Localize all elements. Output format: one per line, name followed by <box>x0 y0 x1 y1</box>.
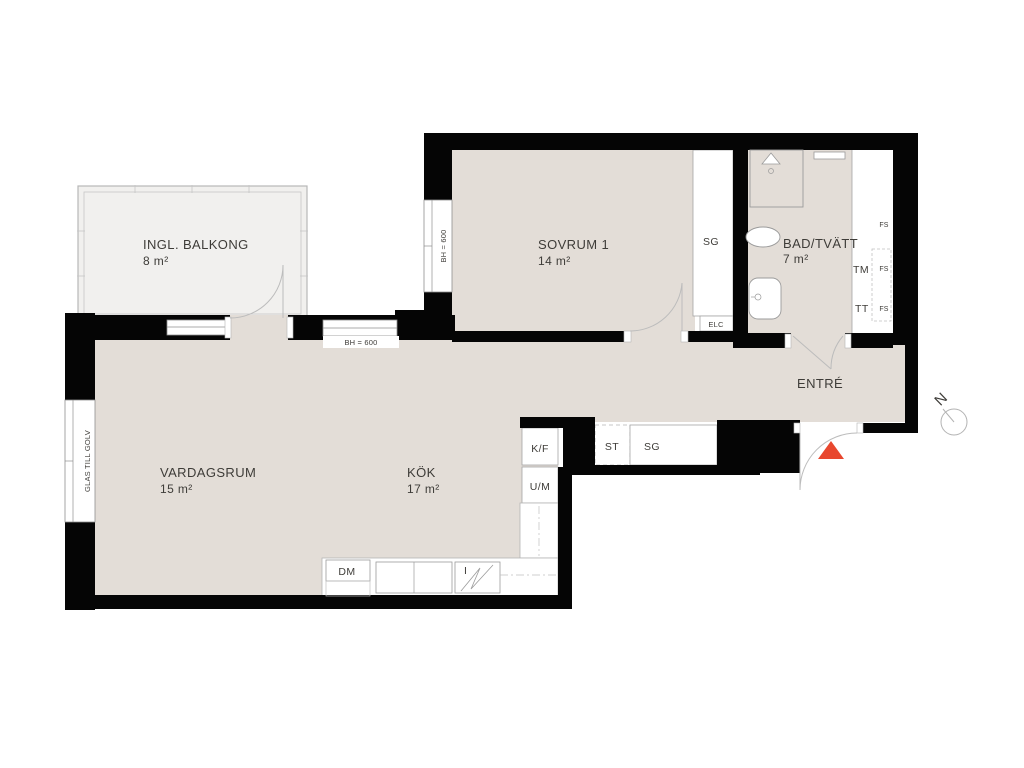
living-name: VARDAGSRUM <box>160 465 256 480</box>
entrance-name: ENTRÉ <box>797 376 843 391</box>
cleaning-closet-label: ST <box>605 441 619 453</box>
wall-bathroom-west <box>733 150 748 348</box>
hob-label: I <box>464 565 467 577</box>
sill-height-living-label: BH = 600 <box>344 338 377 347</box>
bathtub <box>749 278 781 319</box>
balcony-outer-wall <box>78 186 307 320</box>
kitchen-name: KÖK <box>407 465 436 480</box>
linen-cupboard-1-label: FS <box>879 222 888 229</box>
washing-machine-label: TM <box>853 264 869 276</box>
bathroom-door-jamb-right <box>845 334 851 348</box>
tumble-dryer-label: TT <box>855 303 869 315</box>
living-north-window-1 <box>167 320 230 335</box>
balcony-area: 8 m² <box>143 254 169 268</box>
front-door-gap <box>800 423 857 433</box>
wall-bedroom-south-right <box>682 331 733 342</box>
floor-plan-page: N INGL. BALKONG 8 m² SOVRUM 1 14 m² BAD/… <box>0 0 1024 768</box>
oven-microwave-label: U/M <box>530 481 550 493</box>
front-door-jamb-right <box>857 423 863 433</box>
floor-plan-drawing: N INGL. BALKONG 8 m² SOVRUM 1 14 m² BAD/… <box>0 0 1024 768</box>
hall-wardrobe-label: SG <box>644 441 660 453</box>
wall-bathroom-south-right <box>845 333 893 348</box>
kitchen-area: 17 m² <box>407 482 440 496</box>
sill-height-bedroom-label: BH = 600 <box>439 229 448 262</box>
balcony <box>77 185 308 320</box>
glass-to-floor-label: GLAS TILL GOLV <box>83 430 92 492</box>
bathroom-door-jamb-left <box>785 334 791 348</box>
washbasin <box>746 227 780 247</box>
balcony-name: INGL. BALKONG <box>143 237 249 252</box>
dishwasher-label: DM <box>338 566 355 578</box>
bedroom-door-gap <box>630 331 682 342</box>
linen-cupboard-3-label: FS <box>879 306 888 313</box>
wall-entrance-southwest <box>717 420 800 473</box>
wall-bathroom-south-left <box>733 333 791 348</box>
bedroom-door-jamb-left <box>624 331 631 342</box>
wall-bottom <box>65 595 572 609</box>
bedroom-area: 14 m² <box>538 254 571 268</box>
bedroom-name: SOVRUM 1 <box>538 237 609 252</box>
wall-east-lower <box>905 340 918 433</box>
electrical-cabinet-label: ELC <box>708 320 724 329</box>
bedroom-wardrobe <box>693 150 733 316</box>
wall-top <box>424 133 918 150</box>
bathroom-area: 7 m² <box>783 252 809 266</box>
fridge-freezer-label: K/F <box>531 443 549 455</box>
linen-cupboard-2-label: FS <box>879 266 888 273</box>
wall-pillar-kitchen <box>563 417 595 467</box>
wall-bedroom-south-left <box>452 331 630 342</box>
balcony-door-jamb-left <box>225 317 231 338</box>
wall-kitchen-east <box>558 467 572 609</box>
bedroom-wardrobe-label: SG <box>703 236 719 248</box>
bedroom-door-jamb-right <box>681 331 688 342</box>
balcony-door-gap <box>230 315 288 340</box>
wall-entrance-south <box>858 423 918 433</box>
wall-east-upper <box>893 150 918 345</box>
bathroom-shelf <box>814 152 845 159</box>
living-area: 15 m² <box>160 482 193 496</box>
front-door-jamb-left <box>794 423 800 433</box>
wall-above-fridge <box>520 417 563 428</box>
balcony-door-jamb-right <box>287 317 293 338</box>
bathroom-name: BAD/TVÄTT <box>783 236 858 251</box>
